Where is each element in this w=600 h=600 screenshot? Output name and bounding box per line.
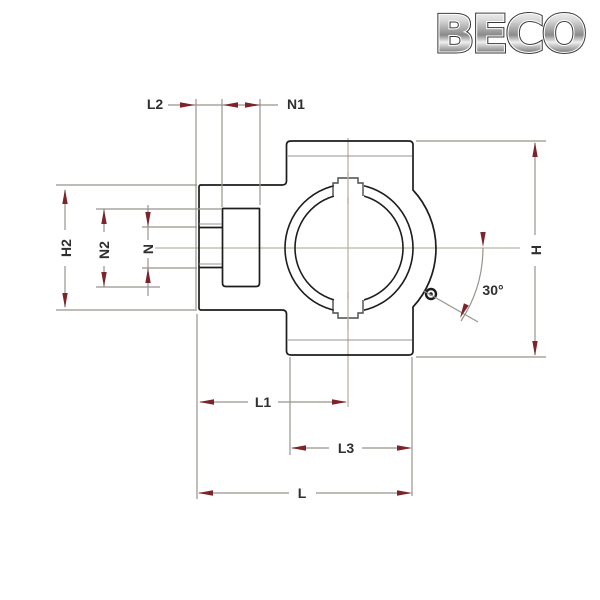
beco-logo-graphic: BECO BECO xyxy=(430,3,588,65)
technical-drawing-canvas: L2 N1 H2 N2 N H L1 L3 L 30° BECO BECO xyxy=(0,0,600,600)
drawing-linework xyxy=(0,0,600,600)
dim-label-h: H xyxy=(529,243,543,257)
dimension-l3 xyxy=(290,357,412,496)
dim-label-n: N xyxy=(141,242,155,256)
dim-label-l: L xyxy=(296,486,309,500)
beco-logo-text-highlight: BECO xyxy=(434,5,585,65)
beco-logo: BECO BECO xyxy=(430,3,588,65)
dim-label-h2: H2 xyxy=(59,237,73,259)
dim-label-angle: 30° xyxy=(480,283,505,297)
dim-label-l1: L1 xyxy=(253,395,273,409)
dim-label-n2: N2 xyxy=(97,239,111,261)
dimension-arrows xyxy=(62,102,537,495)
dim-label-n1: N1 xyxy=(285,97,307,111)
dim-label-l2: L2 xyxy=(145,97,165,111)
dimension-lines xyxy=(56,99,546,499)
dim-label-l3: L3 xyxy=(336,441,356,455)
angle-dimension xyxy=(424,248,483,322)
